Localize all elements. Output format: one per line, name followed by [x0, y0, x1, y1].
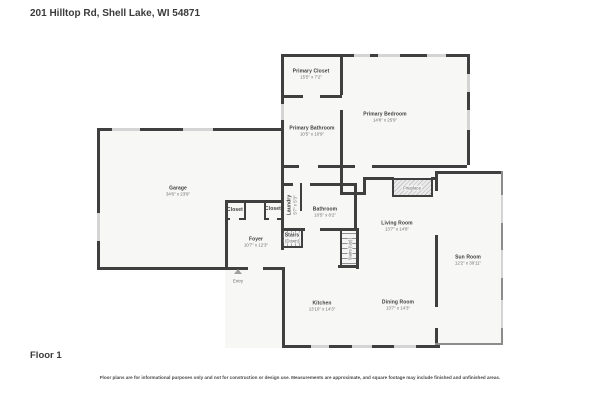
room-label-closet-2: Closet: [265, 206, 281, 212]
wall: [281, 183, 293, 186]
wall: [340, 192, 365, 195]
room-label-living-room: Living Room 13'7" x 14'8": [381, 221, 412, 232]
room-label-garage: Garage 34'6" x 23'9": [166, 186, 190, 197]
wall: [435, 171, 438, 191]
wall: [340, 231, 342, 267]
wall: [343, 165, 355, 168]
room-label-stairs-up: Stairs (Up): [348, 239, 353, 262]
wall: [318, 165, 343, 168]
wall-sunroom-top: [435, 171, 503, 174]
disclaimer-text: Floor plans are for informational purpos…: [0, 375, 600, 380]
room-label-laundry: Laundry 5'7" x 5'3": [287, 195, 298, 215]
wall: [97, 128, 100, 270]
window-marker: [394, 345, 416, 348]
room-label-closet-1: Closet: [227, 207, 243, 213]
wall: [301, 228, 303, 248]
wall: [310, 183, 356, 186]
wall: [239, 218, 246, 220]
room-label-entry: Entry: [233, 279, 243, 284]
window-marker: [467, 74, 470, 92]
floor-label: Floor 1: [30, 350, 62, 361]
wall: [340, 54, 343, 95]
floor-plan: 201 Hilltop Rd, Shell Lake, WI 54871: [0, 0, 600, 400]
wall: [356, 228, 359, 269]
window-marker: [427, 54, 446, 57]
wall: [354, 183, 357, 228]
room-label-sun-room: Sun Room 12'2" x 30'11": [455, 255, 481, 266]
window-marker: [352, 345, 372, 348]
wall: [225, 218, 230, 220]
entry-arrow-icon: [234, 269, 242, 274]
window-marker: [378, 54, 400, 57]
room-label-foyer: Foyer 10'7" x 12'3": [244, 237, 268, 248]
wall: [282, 267, 285, 348]
window-marker: [311, 345, 329, 348]
address-title: 201 Hilltop Rd, Shell Lake, WI 54871: [30, 8, 200, 19]
window-marker: [354, 54, 370, 57]
wall: [300, 183, 302, 211]
room-label-kitchen: Kitchen 13'10" x 14'3": [309, 301, 336, 312]
wall: [281, 246, 303, 248]
wall: [372, 165, 467, 168]
window-marker: [501, 250, 503, 278]
wall: [435, 328, 438, 348]
wall: [338, 265, 359, 268]
wall-sunroom-bottom: [435, 343, 503, 345]
window-marker: [112, 128, 140, 131]
wall: [97, 267, 248, 270]
wall: [340, 110, 343, 194]
wall: [225, 200, 281, 203]
wall: [281, 54, 284, 250]
window-marker: [281, 104, 284, 120]
window-marker: [501, 300, 503, 328]
window-marker: [183, 128, 213, 131]
window-marker: [501, 195, 503, 223]
wall: [435, 235, 438, 267]
wall: [281, 165, 299, 168]
wall: [320, 228, 357, 231]
room-label-stairs-down: Stairs (Down): [284, 233, 301, 244]
wall: [435, 267, 438, 307]
wall: [244, 200, 246, 218]
room-label-fireplace: Fireplace: [402, 186, 422, 191]
room-label-dining-room: Dining Room 13'7" x 14'3": [382, 300, 414, 311]
window-marker: [97, 213, 100, 241]
wall: [277, 218, 281, 220]
room-label-primary-bedroom: Primary Bedroom 14'8" x 25'9": [363, 112, 406, 123]
wall: [366, 177, 394, 180]
window-marker: [467, 110, 470, 130]
room-label-bathroom: Bathroom 10'5" x 8'2": [313, 207, 337, 218]
wall: [264, 218, 269, 220]
room-label-primary-closet: Primary Closet 15'5" x 7'2": [293, 69, 330, 80]
room-label-primary-bathroom: Primary Bathroom 10'5" x 10'9": [289, 126, 334, 137]
wall: [281, 95, 303, 98]
wall: [320, 95, 342, 98]
